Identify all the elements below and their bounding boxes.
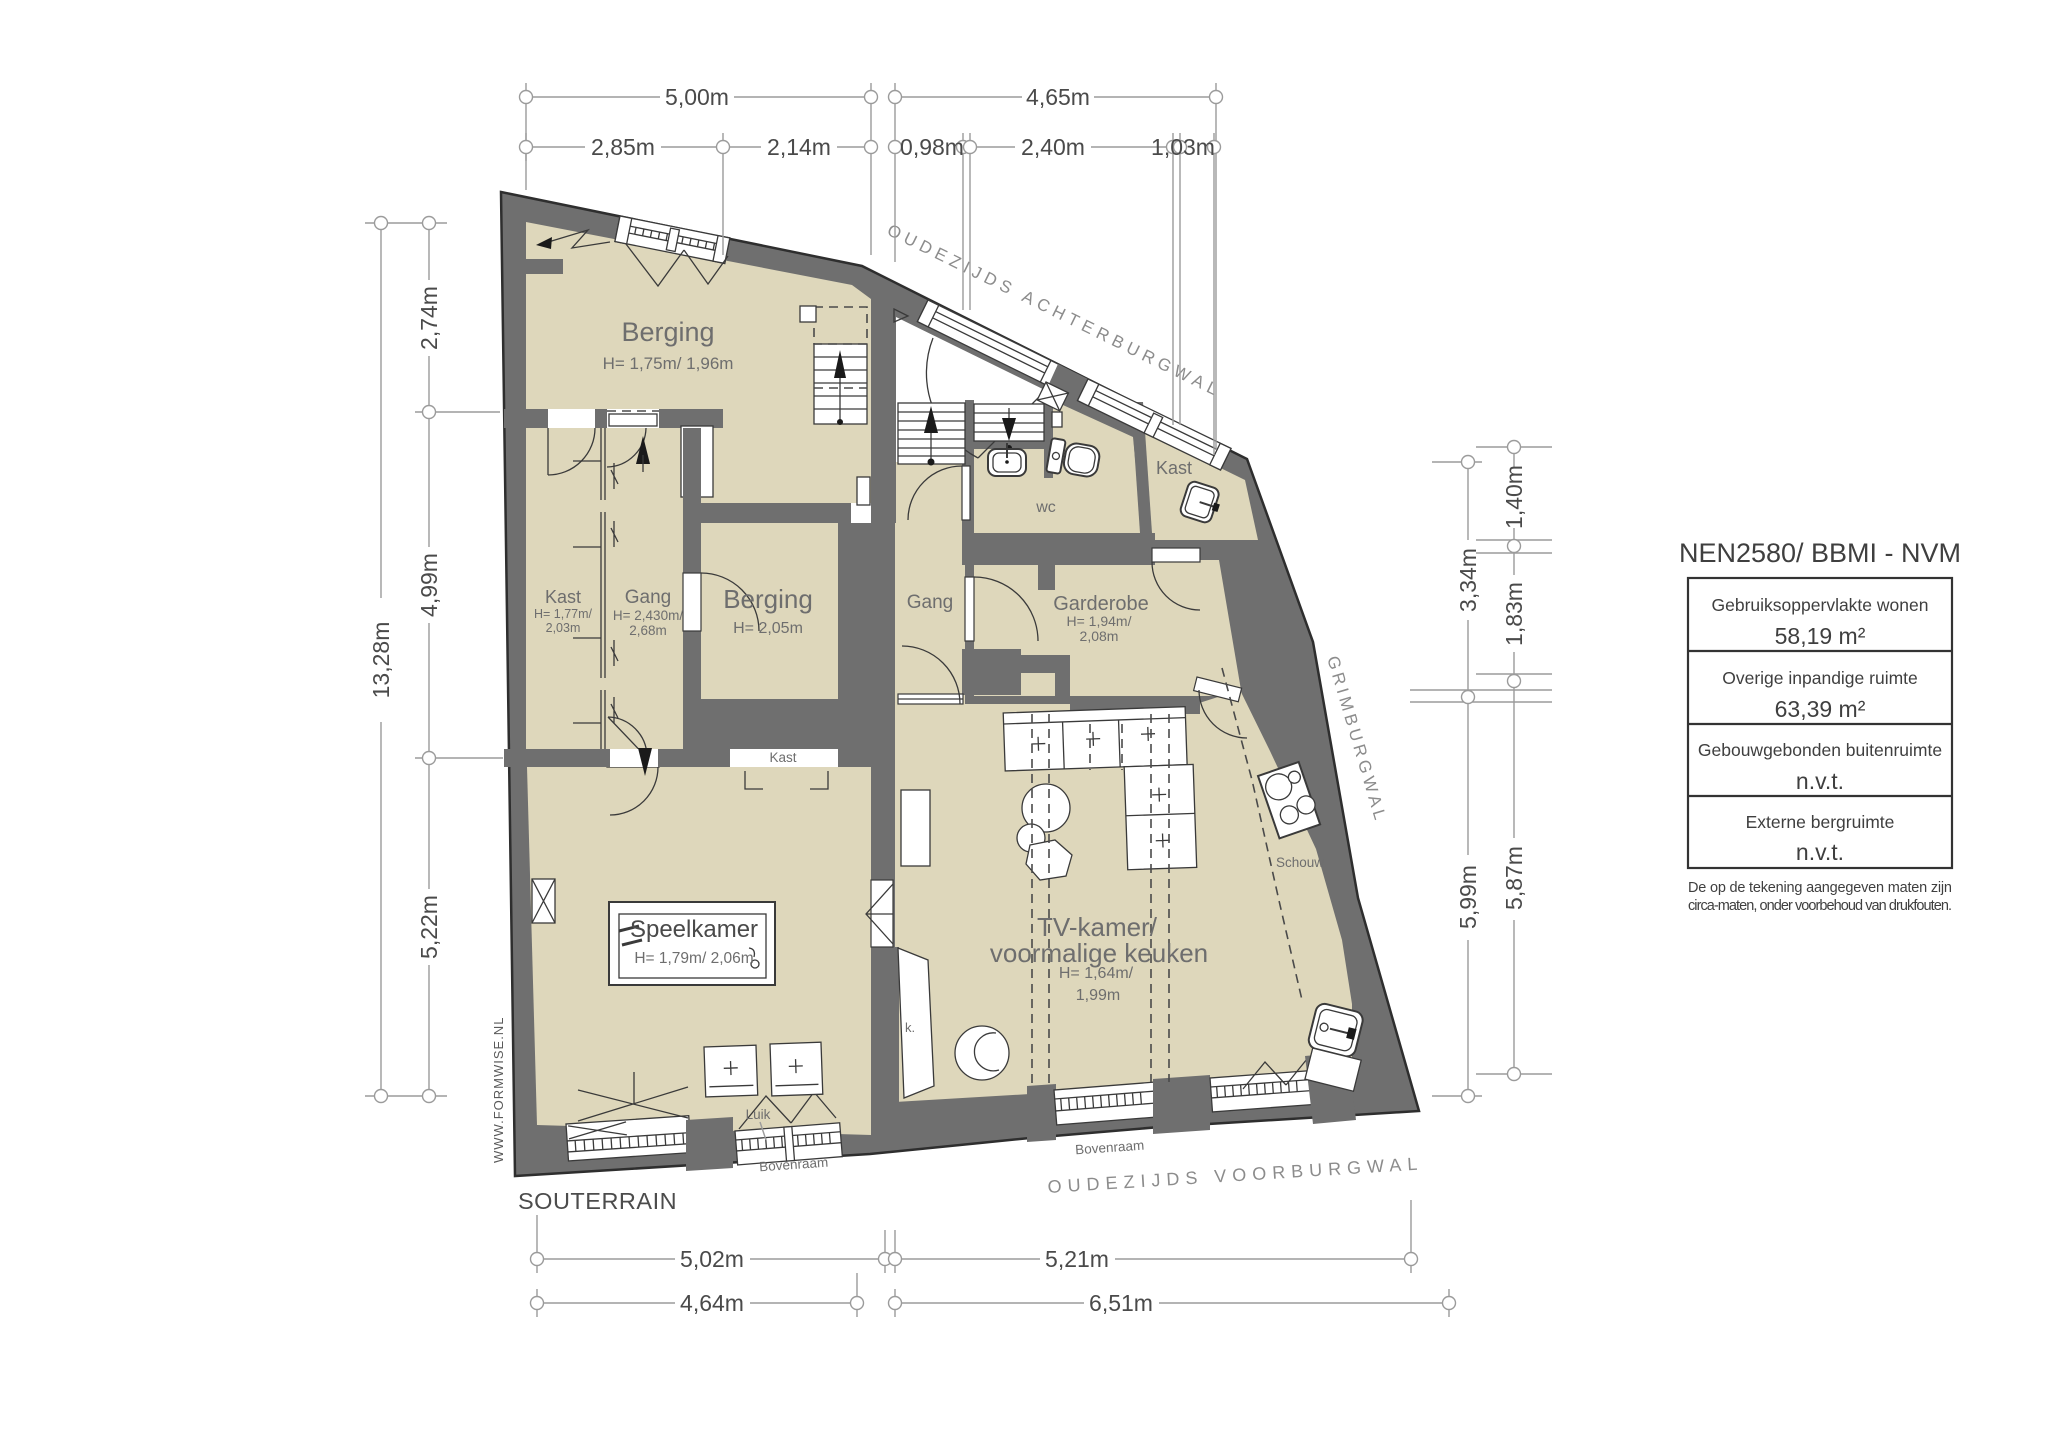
svg-text:1,03m: 1,03m	[1151, 134, 1215, 160]
svg-text:n.v.t.: n.v.t.	[1796, 839, 1844, 865]
svg-text:H= 1,77m/: H= 1,77m/	[534, 607, 593, 621]
svg-text:NEN2580/ BBMI - NVM: NEN2580/ BBMI - NVM	[1679, 538, 1961, 568]
svg-text:1,99m: 1,99m	[1076, 987, 1120, 1004]
svg-text:SOUTERRAIN: SOUTERRAIN	[518, 1188, 677, 1214]
svg-text:voormalige keuken: voormalige keuken	[990, 938, 1208, 968]
svg-text:wc: wc	[1035, 499, 1056, 516]
svg-text:H= 2,430m/: H= 2,430m/	[613, 608, 683, 623]
svg-text:Berging: Berging	[723, 584, 813, 614]
svg-text:4,99m: 4,99m	[416, 553, 442, 617]
svg-text:2,08m: 2,08m	[1080, 628, 1119, 644]
svg-text:H= 1,94m/: H= 1,94m/	[1067, 613, 1132, 629]
svg-text:5,22m: 5,22m	[416, 895, 442, 959]
svg-text:H= 1,79m/ 2,06m: H= 1,79m/ 2,06m	[634, 950, 753, 967]
svg-text:5,87m: 5,87m	[1501, 846, 1527, 910]
svg-text:Kast: Kast	[545, 587, 581, 607]
svg-text:Gebruiksoppervlakte wonen: Gebruiksoppervlakte wonen	[1712, 595, 1929, 615]
svg-text:1,40m: 1,40m	[1501, 465, 1527, 529]
svg-text:2,68m: 2,68m	[629, 623, 667, 638]
svg-text:0,98m: 0,98m	[900, 134, 964, 160]
svg-text:Gang: Gang	[625, 587, 671, 608]
svg-text:4,64m: 4,64m	[680, 1290, 744, 1316]
svg-text:2,40m: 2,40m	[1021, 134, 1085, 160]
svg-text:Kast: Kast	[769, 750, 796, 765]
svg-text:H= 2,05m: H= 2,05m	[733, 620, 803, 637]
svg-text:2,74m: 2,74m	[416, 286, 442, 350]
svg-text:Gang: Gang	[907, 592, 953, 613]
svg-text:5,02m: 5,02m	[680, 1246, 744, 1272]
svg-text:Berging: Berging	[621, 317, 714, 347]
svg-text:Externe bergruimte: Externe bergruimte	[1746, 812, 1895, 832]
svg-text:1,83m: 1,83m	[1501, 582, 1527, 646]
svg-text:2,85m: 2,85m	[591, 134, 655, 160]
svg-text:Luik: Luik	[746, 1107, 771, 1122]
svg-text:6,51m: 6,51m	[1089, 1290, 1153, 1316]
svg-text:H= 1,64m/: H= 1,64m/	[1059, 965, 1134, 982]
svg-text:5,99m: 5,99m	[1455, 865, 1481, 929]
svg-text:13,28m: 13,28m	[368, 622, 394, 699]
svg-text:Speelkamer: Speelkamer	[630, 916, 758, 943]
svg-text:Gebouwgebonden buitenruimte: Gebouwgebonden buitenruimte	[1698, 740, 1942, 760]
svg-text:WWW.FORMWISE.NL: WWW.FORMWISE.NL	[491, 1017, 506, 1163]
svg-text:5,00m: 5,00m	[665, 84, 729, 110]
svg-text:Garderobe: Garderobe	[1053, 593, 1149, 615]
svg-text:5,21m: 5,21m	[1045, 1246, 1109, 1272]
svg-text:k.: k.	[905, 1020, 915, 1035]
svg-text:3,34m: 3,34m	[1455, 548, 1481, 612]
svg-text:Overige inpandige ruimte: Overige inpandige ruimte	[1722, 668, 1918, 688]
svg-text:2,03m: 2,03m	[546, 621, 581, 635]
svg-text:Schouw: Schouw	[1276, 855, 1324, 870]
svg-text:2,14m: 2,14m	[767, 134, 831, 160]
svg-text:De op de tekening aangegeven m: De op de tekening aangegeven maten zijn	[1688, 880, 1952, 896]
svg-text:circa-maten, onder voorbehoud: circa-maten, onder voorbehoud van drukfo…	[1688, 898, 1952, 914]
svg-text:58,19 m²: 58,19 m²	[1775, 623, 1866, 649]
svg-text:Kast: Kast	[1156, 458, 1192, 478]
svg-text:63,39 m²: 63,39 m²	[1775, 696, 1866, 722]
svg-text:n.v.t.: n.v.t.	[1796, 768, 1844, 794]
svg-text:H= 1,75m/ 1,96m: H= 1,75m/ 1,96m	[603, 354, 734, 373]
svg-text:4,65m: 4,65m	[1026, 84, 1090, 110]
